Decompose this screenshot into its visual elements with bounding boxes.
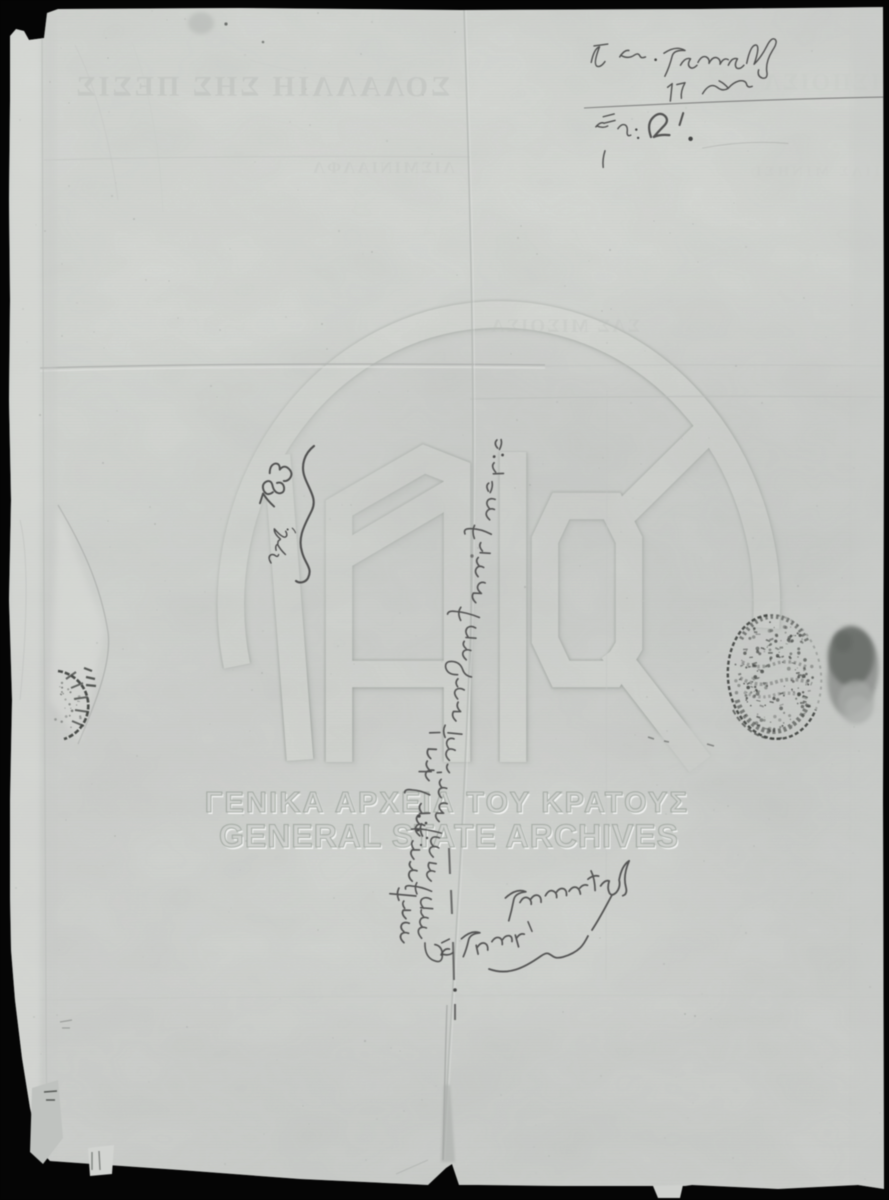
svg-text:GENERAL STATE ARCHIVES: GENERAL STATE ARCHIVES <box>219 818 679 854</box>
svg-text:ΛΙΣΜΙΝΙΑΛΦΛ: ΛΙΣΜΙΝΙΑΛΦΛ <box>311 158 455 177</box>
svg-text:ΣΟΛΑΛΛΙΗ ΣΗΣ ΠΕΣΙΣ: ΣΟΛΑΛΛΙΗ ΣΗΣ ΠΕΣΙΣ <box>73 71 450 103</box>
svg-text:ΣΛΣ ΜΙΣΟΙΣΛ: ΣΛΣ ΜΙΣΟΙΣΛ <box>489 316 640 337</box>
